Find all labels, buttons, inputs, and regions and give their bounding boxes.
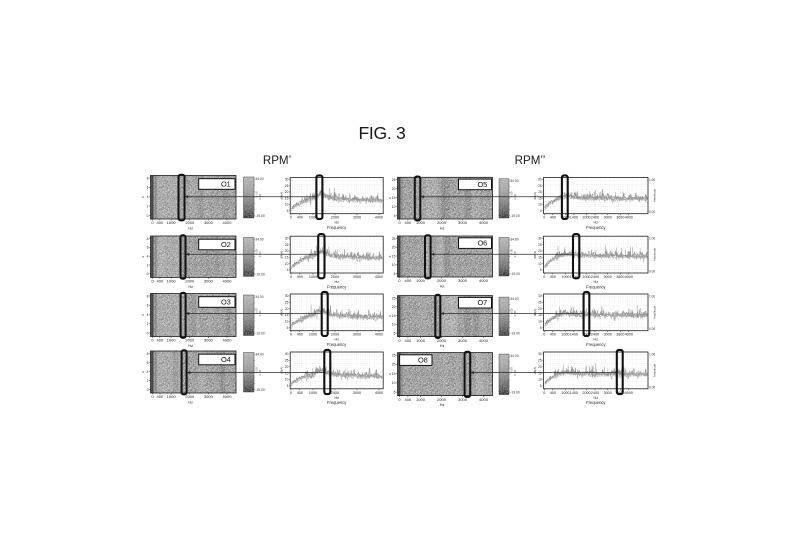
svg-text:dB(A): dB(A) (280, 367, 284, 375)
svg-text:0: 0 (543, 275, 545, 279)
svg-text:30: 30 (285, 236, 289, 240)
svg-text:2000: 2000 (582, 216, 590, 220)
svg-text:4000: 4000 (223, 338, 233, 343)
svg-text:6: 6 (147, 186, 149, 190)
svg-text:10: 10 (538, 262, 542, 266)
svg-text:3600: 3600 (616, 275, 624, 279)
svg-text:6: 6 (147, 304, 149, 308)
svg-text:30: 30 (285, 352, 289, 356)
svg-text:20: 20 (392, 246, 396, 250)
svg-text:1000: 1000 (309, 333, 317, 337)
svg-text:400: 400 (550, 333, 556, 337)
svg-text:25: 25 (285, 301, 289, 305)
svg-text:Hz: Hz (440, 285, 445, 289)
svg-text:4000: 4000 (223, 279, 233, 284)
svg-text:1400: 1400 (570, 216, 578, 220)
svg-text:2400: 2400 (591, 391, 599, 395)
svg-text:-19.00: -19.00 (510, 391, 520, 395)
svg-text:0: 0 (147, 214, 149, 218)
svg-text:Hz: Hz (440, 403, 445, 407)
svg-text:2400: 2400 (591, 216, 599, 220)
svg-text:3000: 3000 (353, 333, 361, 337)
svg-text:Frequency: Frequency (327, 342, 347, 347)
svg-text:Frequency: Frequency (586, 342, 606, 347)
svg-text:1000: 1000 (167, 220, 177, 225)
svg-text:34.00: 34.00 (255, 353, 264, 357)
svg-text:10: 10 (285, 320, 289, 324)
svg-text:0: 0 (290, 391, 292, 395)
svg-text:2400: 2400 (591, 333, 599, 337)
svg-text:2000: 2000 (331, 216, 339, 220)
svg-text:4000: 4000 (375, 216, 383, 220)
svg-text:0: 0 (147, 272, 149, 276)
svg-text:20: 20 (392, 363, 396, 367)
svg-text:34.00: 34.00 (255, 238, 264, 242)
svg-text:Hz: Hz (188, 285, 193, 289)
svg-text:10: 10 (538, 203, 542, 207)
svg-text:400: 400 (550, 216, 556, 220)
svg-text:0.00: 0.00 (649, 327, 655, 331)
svg-text:3600: 3600 (616, 216, 624, 220)
svg-text:8: 8 (147, 294, 149, 298)
svg-text:4000: 4000 (625, 391, 633, 395)
svg-text:25: 25 (392, 178, 396, 182)
svg-text:25: 25 (392, 296, 396, 300)
svg-text:RPM’: RPM’ (263, 154, 291, 167)
svg-text:2: 2 (147, 263, 149, 267)
svg-text:0: 0 (290, 333, 292, 337)
svg-text:O7: O7 (477, 298, 487, 307)
svg-text:0.00: 0.00 (649, 270, 655, 274)
svg-text:dB(A): dB(A) (533, 192, 537, 200)
svg-text:1000: 1000 (561, 333, 569, 337)
svg-text:3000: 3000 (204, 394, 214, 399)
svg-text:2: 2 (147, 204, 149, 208)
svg-text:1000: 1000 (416, 338, 426, 343)
svg-text:25: 25 (538, 301, 542, 305)
svg-text:1.00: 1.00 (649, 353, 655, 357)
svg-text:2400: 2400 (591, 275, 599, 279)
svg-text:400: 400 (297, 275, 303, 279)
svg-text:1000: 1000 (167, 338, 177, 343)
svg-text:400: 400 (405, 278, 412, 283)
svg-text:4000: 4000 (479, 397, 489, 402)
svg-text:15: 15 (392, 372, 396, 376)
svg-text:2: 2 (147, 322, 149, 326)
svg-text:0: 0 (290, 275, 292, 279)
svg-text:O8: O8 (418, 356, 428, 365)
svg-text:20: 20 (538, 307, 542, 311)
svg-text:20: 20 (285, 249, 289, 253)
svg-text:Hz: Hz (440, 227, 445, 231)
svg-text:Frequency: Frequency (586, 225, 606, 230)
svg-text:O1: O1 (221, 180, 231, 189)
svg-text:20: 20 (285, 365, 289, 369)
svg-text:O4: O4 (221, 355, 231, 364)
svg-text:Frequency: Frequency (327, 400, 347, 405)
svg-text:1000: 1000 (167, 279, 177, 284)
svg-text:25: 25 (538, 184, 542, 188)
svg-text:15: 15 (538, 256, 542, 260)
svg-text:30: 30 (538, 236, 542, 240)
svg-text:5: 5 (540, 384, 542, 388)
svg-text:8: 8 (147, 352, 149, 356)
svg-text:6: 6 (147, 246, 149, 250)
svg-text:4000: 4000 (375, 333, 383, 337)
svg-text:25: 25 (392, 237, 396, 241)
svg-text:Amplitude: Amplitude (653, 248, 657, 262)
svg-text:400: 400 (157, 394, 164, 399)
svg-text:400: 400 (157, 220, 164, 225)
svg-text:2000: 2000 (582, 391, 590, 395)
svg-text:10: 10 (285, 378, 289, 382)
svg-text:3000: 3000 (604, 391, 612, 395)
svg-text:1000: 1000 (167, 394, 177, 399)
svg-text:4: 4 (147, 195, 149, 199)
svg-text:-19.00: -19.00 (510, 272, 520, 276)
svg-text:3000: 3000 (458, 338, 468, 343)
svg-text:-19.00: -19.00 (255, 332, 265, 336)
svg-text:30: 30 (538, 294, 542, 298)
svg-text:5: 5 (540, 326, 542, 330)
svg-text:3000: 3000 (604, 333, 612, 337)
svg-text:4: 4 (147, 370, 149, 374)
svg-text:2000: 2000 (582, 275, 590, 279)
svg-text:Hz: Hz (188, 227, 193, 231)
svg-text:5: 5 (287, 209, 289, 213)
svg-text:5: 5 (540, 209, 542, 213)
svg-text:10: 10 (285, 203, 289, 207)
svg-text:dB(A): dB(A) (280, 192, 284, 200)
svg-text:15: 15 (285, 256, 289, 260)
svg-text:4000: 4000 (479, 338, 489, 343)
svg-text:3000: 3000 (204, 338, 214, 343)
svg-text:20: 20 (392, 305, 396, 309)
svg-text:3600: 3600 (616, 333, 624, 337)
svg-text:10: 10 (392, 323, 396, 327)
svg-text:Frequency: Frequency (586, 284, 606, 289)
svg-text:30: 30 (285, 178, 289, 182)
svg-text:1.00: 1.00 (649, 295, 655, 299)
svg-text:1000: 1000 (561, 391, 569, 395)
svg-text:5: 5 (394, 272, 396, 276)
svg-text:10: 10 (392, 263, 396, 267)
svg-text:Frequency: Frequency (327, 225, 347, 230)
svg-text:4000: 4000 (223, 394, 233, 399)
svg-text:O3: O3 (221, 298, 231, 307)
svg-text:Amplitude: Amplitude (653, 363, 657, 377)
svg-text:400: 400 (405, 220, 412, 225)
svg-text:-19.00: -19.00 (510, 332, 520, 336)
svg-text:4000: 4000 (375, 275, 383, 279)
svg-text:Hz: Hz (440, 344, 445, 348)
svg-text:0: 0 (147, 331, 149, 335)
svg-text:O2: O2 (221, 240, 231, 249)
svg-text:3000: 3000 (204, 279, 214, 284)
svg-text:FIG. 3: FIG. 3 (358, 123, 406, 143)
svg-text:400: 400 (157, 338, 164, 343)
svg-text:25: 25 (392, 353, 396, 357)
svg-text:5: 5 (394, 331, 396, 335)
svg-text:10: 10 (538, 320, 542, 324)
svg-text:34.00: 34.00 (510, 179, 519, 183)
svg-text:25: 25 (538, 243, 542, 247)
svg-text:20: 20 (538, 190, 542, 194)
svg-text:2000: 2000 (185, 220, 195, 225)
svg-text:4000: 4000 (479, 220, 489, 225)
svg-text:Hz: Hz (188, 401, 193, 405)
svg-text:0: 0 (543, 216, 545, 220)
svg-text:dB(A): dB(A) (533, 309, 537, 317)
svg-text:0: 0 (147, 388, 149, 392)
svg-text:15: 15 (538, 371, 542, 375)
svg-text:10: 10 (392, 381, 396, 385)
svg-text:30: 30 (538, 352, 542, 356)
svg-text:RPM’’: RPM’’ (515, 154, 546, 167)
svg-text:25: 25 (285, 243, 289, 247)
svg-text:3000: 3000 (604, 216, 612, 220)
svg-text:Hz: Hz (188, 344, 193, 348)
svg-text:5: 5 (394, 214, 396, 218)
svg-text:15: 15 (392, 254, 396, 258)
svg-text:5: 5 (287, 384, 289, 388)
svg-text:2000: 2000 (185, 338, 195, 343)
svg-text:3000: 3000 (204, 220, 214, 225)
svg-text:1400: 1400 (570, 391, 578, 395)
svg-text:400: 400 (157, 279, 164, 284)
svg-text:1000: 1000 (309, 275, 317, 279)
svg-text:O5: O5 (477, 180, 487, 189)
svg-text:4: 4 (147, 255, 149, 259)
svg-text:10: 10 (285, 262, 289, 266)
svg-text:1000: 1000 (416, 278, 426, 283)
svg-text:3000: 3000 (604, 275, 612, 279)
svg-text:30: 30 (538, 178, 542, 182)
svg-text:Amplitude: Amplitude (653, 305, 657, 319)
svg-text:3000: 3000 (458, 278, 468, 283)
svg-text:34.00: 34.00 (510, 297, 519, 301)
svg-text:1000: 1000 (561, 275, 569, 279)
svg-text:10: 10 (392, 205, 396, 209)
svg-text:1000: 1000 (309, 391, 317, 395)
svg-text:25: 25 (285, 359, 289, 363)
svg-text:2000: 2000 (437, 397, 447, 402)
svg-text:O6: O6 (477, 239, 487, 248)
svg-text:20: 20 (538, 365, 542, 369)
svg-text:4000: 4000 (625, 216, 633, 220)
svg-text:8: 8 (147, 237, 149, 241)
svg-text:4: 4 (147, 313, 149, 317)
svg-text:4000: 4000 (223, 220, 233, 225)
svg-text:15: 15 (392, 196, 396, 200)
svg-text:Frequency: Frequency (586, 400, 606, 405)
svg-text:1.00: 1.00 (649, 237, 655, 241)
svg-text:34.00: 34.00 (255, 177, 264, 181)
svg-text:Amplitude: Amplitude (653, 189, 657, 203)
svg-text:3000: 3000 (353, 216, 361, 220)
svg-text:5: 5 (287, 326, 289, 330)
svg-text:4000: 4000 (625, 333, 633, 337)
svg-text:2000: 2000 (331, 333, 339, 337)
svg-text:2000: 2000 (331, 275, 339, 279)
svg-text:8: 8 (147, 176, 149, 180)
svg-text:400: 400 (550, 391, 556, 395)
svg-text:6: 6 (147, 361, 149, 365)
svg-text:400: 400 (297, 391, 303, 395)
svg-text:4000: 4000 (375, 391, 383, 395)
svg-text:5: 5 (394, 390, 396, 394)
svg-text:2000: 2000 (437, 278, 447, 283)
svg-text:1400: 1400 (570, 333, 578, 337)
svg-text:15: 15 (285, 371, 289, 375)
svg-text:3000: 3000 (353, 275, 361, 279)
svg-text:-19.00: -19.00 (510, 214, 520, 218)
svg-text:Frequency: Frequency (327, 284, 347, 289)
svg-text:2000: 2000 (331, 391, 339, 395)
svg-text:30: 30 (285, 294, 289, 298)
svg-text:2000: 2000 (437, 220, 447, 225)
svg-text:0: 0 (290, 216, 292, 220)
svg-text:10: 10 (538, 378, 542, 382)
svg-text:400: 400 (405, 338, 412, 343)
svg-text:20: 20 (538, 249, 542, 253)
svg-text:400: 400 (550, 275, 556, 279)
svg-text:400: 400 (297, 216, 303, 220)
svg-text:20: 20 (392, 187, 396, 191)
svg-text:0.00: 0.00 (649, 210, 655, 214)
svg-text:5: 5 (287, 268, 289, 272)
svg-text:2000: 2000 (185, 279, 195, 284)
svg-text:20: 20 (285, 190, 289, 194)
svg-text:-19.00: -19.00 (255, 388, 265, 392)
svg-text:3000: 3000 (458, 220, 468, 225)
svg-text:25: 25 (285, 184, 289, 188)
svg-text:dB(A): dB(A) (280, 309, 284, 317)
svg-text:0.00: 0.00 (649, 385, 655, 389)
svg-text:dB(A): dB(A) (533, 367, 537, 375)
svg-text:34.00: 34.00 (255, 295, 264, 299)
svg-text:3000: 3000 (353, 391, 361, 395)
svg-text:15: 15 (392, 314, 396, 318)
svg-text:0: 0 (543, 391, 545, 395)
svg-text:25: 25 (538, 359, 542, 363)
svg-text:20: 20 (285, 307, 289, 311)
svg-text:5: 5 (540, 268, 542, 272)
svg-text:2000: 2000 (185, 394, 195, 399)
svg-text:34.00: 34.00 (510, 354, 519, 358)
svg-text:34.00: 34.00 (510, 238, 519, 242)
svg-text:2: 2 (147, 379, 149, 383)
svg-text:0: 0 (543, 333, 545, 337)
svg-text:1000: 1000 (416, 397, 426, 402)
svg-text:400: 400 (297, 333, 303, 337)
svg-text:-19.00: -19.00 (255, 272, 265, 276)
svg-text:400: 400 (405, 397, 412, 402)
svg-text:4000: 4000 (625, 275, 633, 279)
svg-text:4000: 4000 (479, 278, 489, 283)
svg-text:1.00: 1.00 (649, 178, 655, 182)
svg-text:-19.00: -19.00 (255, 214, 265, 218)
